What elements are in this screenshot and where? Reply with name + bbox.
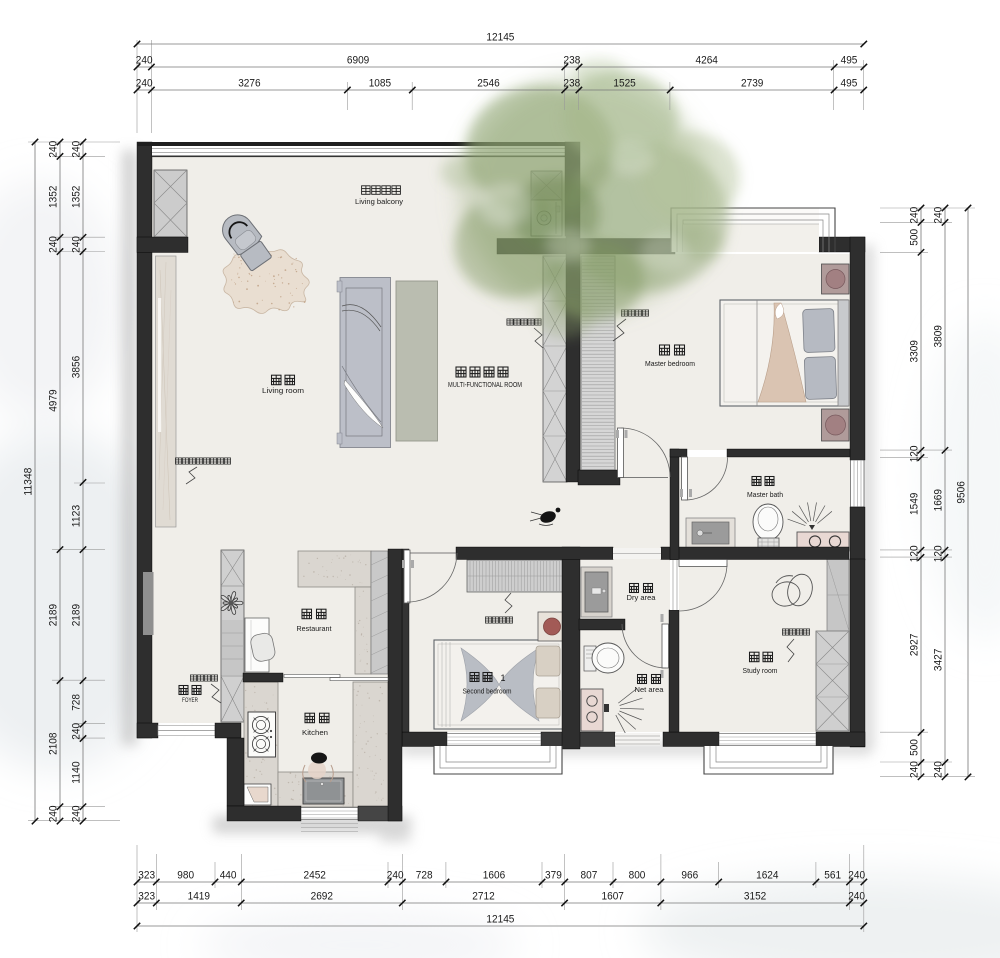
svg-text:2692: 2692 [311,891,333,903]
svg-text:2189: 2189 [48,604,60,626]
svg-text:Master bath: Master bath [747,490,783,499]
svg-text:240: 240 [71,723,83,740]
svg-text:Master bedroom: Master bedroom [645,359,695,368]
svg-text:2189: 2189 [71,604,83,626]
svg-text:Net area: Net area [635,685,665,694]
svg-text:440: 440 [220,870,237,882]
svg-text:240: 240 [933,207,945,224]
svg-text:120: 120 [909,545,921,562]
svg-text:Restaurant: Restaurant [297,624,333,633]
svg-text:240: 240 [71,236,83,253]
svg-text:495: 495 [841,78,858,90]
svg-text:9506: 9506 [956,481,968,503]
svg-text:966: 966 [681,870,698,882]
svg-text:Study room: Study room [743,666,778,675]
svg-text:240: 240 [48,236,60,253]
svg-text:240: 240 [848,891,865,903]
svg-text:Second bedroom: Second bedroom [463,687,512,696]
svg-text:1140: 1140 [71,761,83,783]
svg-text:1085: 1085 [369,78,391,90]
svg-text:1: 1 [500,673,505,683]
svg-text:2927: 2927 [909,634,921,656]
svg-text:6909: 6909 [347,55,369,67]
svg-text:240: 240 [387,870,404,882]
svg-text:807: 807 [581,870,598,882]
svg-text:240: 240 [136,55,153,67]
svg-text:4264: 4264 [696,55,718,67]
svg-text:1669: 1669 [933,489,945,511]
svg-text:238: 238 [564,55,581,67]
svg-text:1606: 1606 [483,870,505,882]
svg-text:2108: 2108 [48,733,60,755]
svg-text:FOYER: FOYER [182,698,199,704]
svg-text:1549: 1549 [909,493,921,515]
svg-text:3856: 3856 [71,356,83,378]
svg-text:500: 500 [909,739,921,756]
svg-text:3309: 3309 [909,340,921,362]
svg-text:2546: 2546 [477,78,499,90]
svg-text:561: 561 [824,870,841,882]
svg-text:240: 240 [909,761,921,778]
svg-text:120: 120 [909,446,921,463]
svg-text:240: 240 [48,141,60,158]
svg-text:240: 240 [848,870,865,882]
svg-text:980: 980 [177,870,194,882]
svg-text:1352: 1352 [48,186,60,208]
svg-text:1607: 1607 [602,891,624,903]
svg-text:2452: 2452 [304,870,326,882]
svg-text:1123: 1123 [71,505,83,527]
svg-text:800: 800 [629,870,646,882]
svg-text:1525: 1525 [613,78,635,90]
svg-text:Living balcony: Living balcony [355,197,403,206]
svg-text:3276: 3276 [238,78,260,90]
svg-text:728: 728 [71,694,83,711]
svg-text:379: 379 [545,870,562,882]
svg-text:Dry area: Dry area [627,593,657,602]
svg-text:238: 238 [563,78,580,90]
svg-text:3427: 3427 [933,649,945,671]
svg-text:12145: 12145 [486,32,514,44]
svg-text:1624: 1624 [756,870,778,882]
svg-text:MULTI-FUNCTIONAL ROOM: MULTI-FUNCTIONAL ROOM [448,382,522,389]
svg-text:1419: 1419 [188,891,210,903]
svg-text:495: 495 [841,55,858,67]
svg-text:3152: 3152 [744,891,766,903]
svg-text:3809: 3809 [933,325,945,347]
svg-text:240: 240 [71,806,83,823]
svg-text:323: 323 [138,870,155,882]
svg-text:4979: 4979 [48,389,60,411]
svg-text:1352: 1352 [71,186,83,208]
svg-text:Living room: Living room [262,386,304,395]
svg-text:240: 240 [909,207,921,224]
svg-text:Kitchen: Kitchen [302,728,328,737]
svg-text:12145: 12145 [486,914,514,926]
svg-text:240: 240 [71,141,83,158]
svg-text:2739: 2739 [741,78,763,90]
svg-text:728: 728 [416,870,433,882]
svg-text:2712: 2712 [472,891,494,903]
svg-text:120: 120 [933,545,945,562]
svg-text:240: 240 [136,78,153,90]
svg-text:240: 240 [933,761,945,778]
svg-text:11348: 11348 [23,468,35,496]
svg-text:500: 500 [909,229,921,246]
svg-text:240: 240 [48,806,60,823]
svg-text:323: 323 [138,891,155,903]
